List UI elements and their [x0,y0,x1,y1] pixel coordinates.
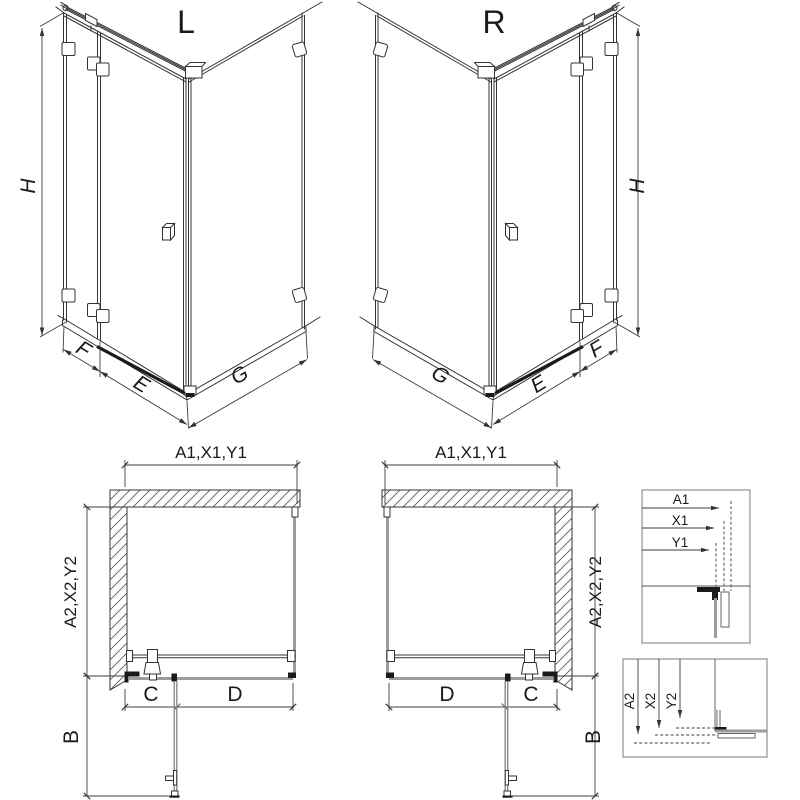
detail-a1-label: A1 [673,492,690,507]
plan-view-right [382,460,599,798]
iso-view-right [358,2,640,429]
plan-door-label-right: D [439,683,454,706]
detail-x1-label: X1 [672,513,689,528]
plan-fixed-label-right: C [523,683,538,706]
plan-door-open-label-left: B [60,730,83,744]
plan-depth-label-right: A2,X2,Y2 [586,556,605,628]
detail-a2-label: A2 [622,693,637,710]
plan-width-label-right: A1,X1,Y1 [435,443,507,462]
plan-width-label-left: A1,X1,Y1 [175,443,247,462]
iso-view-left [40,2,322,429]
detail-y2-label: Y2 [664,693,679,710]
shower-enclosure-diagram: L R H H F E G F E G A1,X1,Y1 A2,X2,Y2 C … [0,0,800,800]
wall-top-left-plan [110,490,300,507]
detail-x2-label: X2 [643,693,658,710]
detail-box-depth: A2 X2 Y2 [622,659,767,757]
plan-fixed-label-left: C [143,683,158,706]
dim-label-fixed-right: F [585,336,609,363]
wall-side-right-plan [555,507,572,690]
technical-drawing-page: L R H H F E G F E G A1,X1,Y1 A2,X2,Y2 C … [0,0,800,800]
plan-depth-label-left: A2,X2,Y2 [61,556,80,628]
variant-left-title: L [177,4,195,40]
plan-door-label-left: D [227,683,242,706]
wall-top-right-plan [382,490,572,507]
wall-side-left-plan [110,507,127,690]
detail-y1-label: Y1 [672,535,689,550]
dim-label-side-right: G [427,361,453,389]
plan-door-open-label-right: B [582,730,605,744]
dim-label-height-left: H [17,178,40,194]
dim-label-fixed-left: F [72,336,96,363]
detail-box-width: A1 X1 Y1 [642,490,750,643]
plan-view-left [83,460,300,798]
dim-label-height-right: H [626,178,649,194]
dim-label-side-left: G [227,361,253,389]
variant-right-title: R [482,4,505,40]
